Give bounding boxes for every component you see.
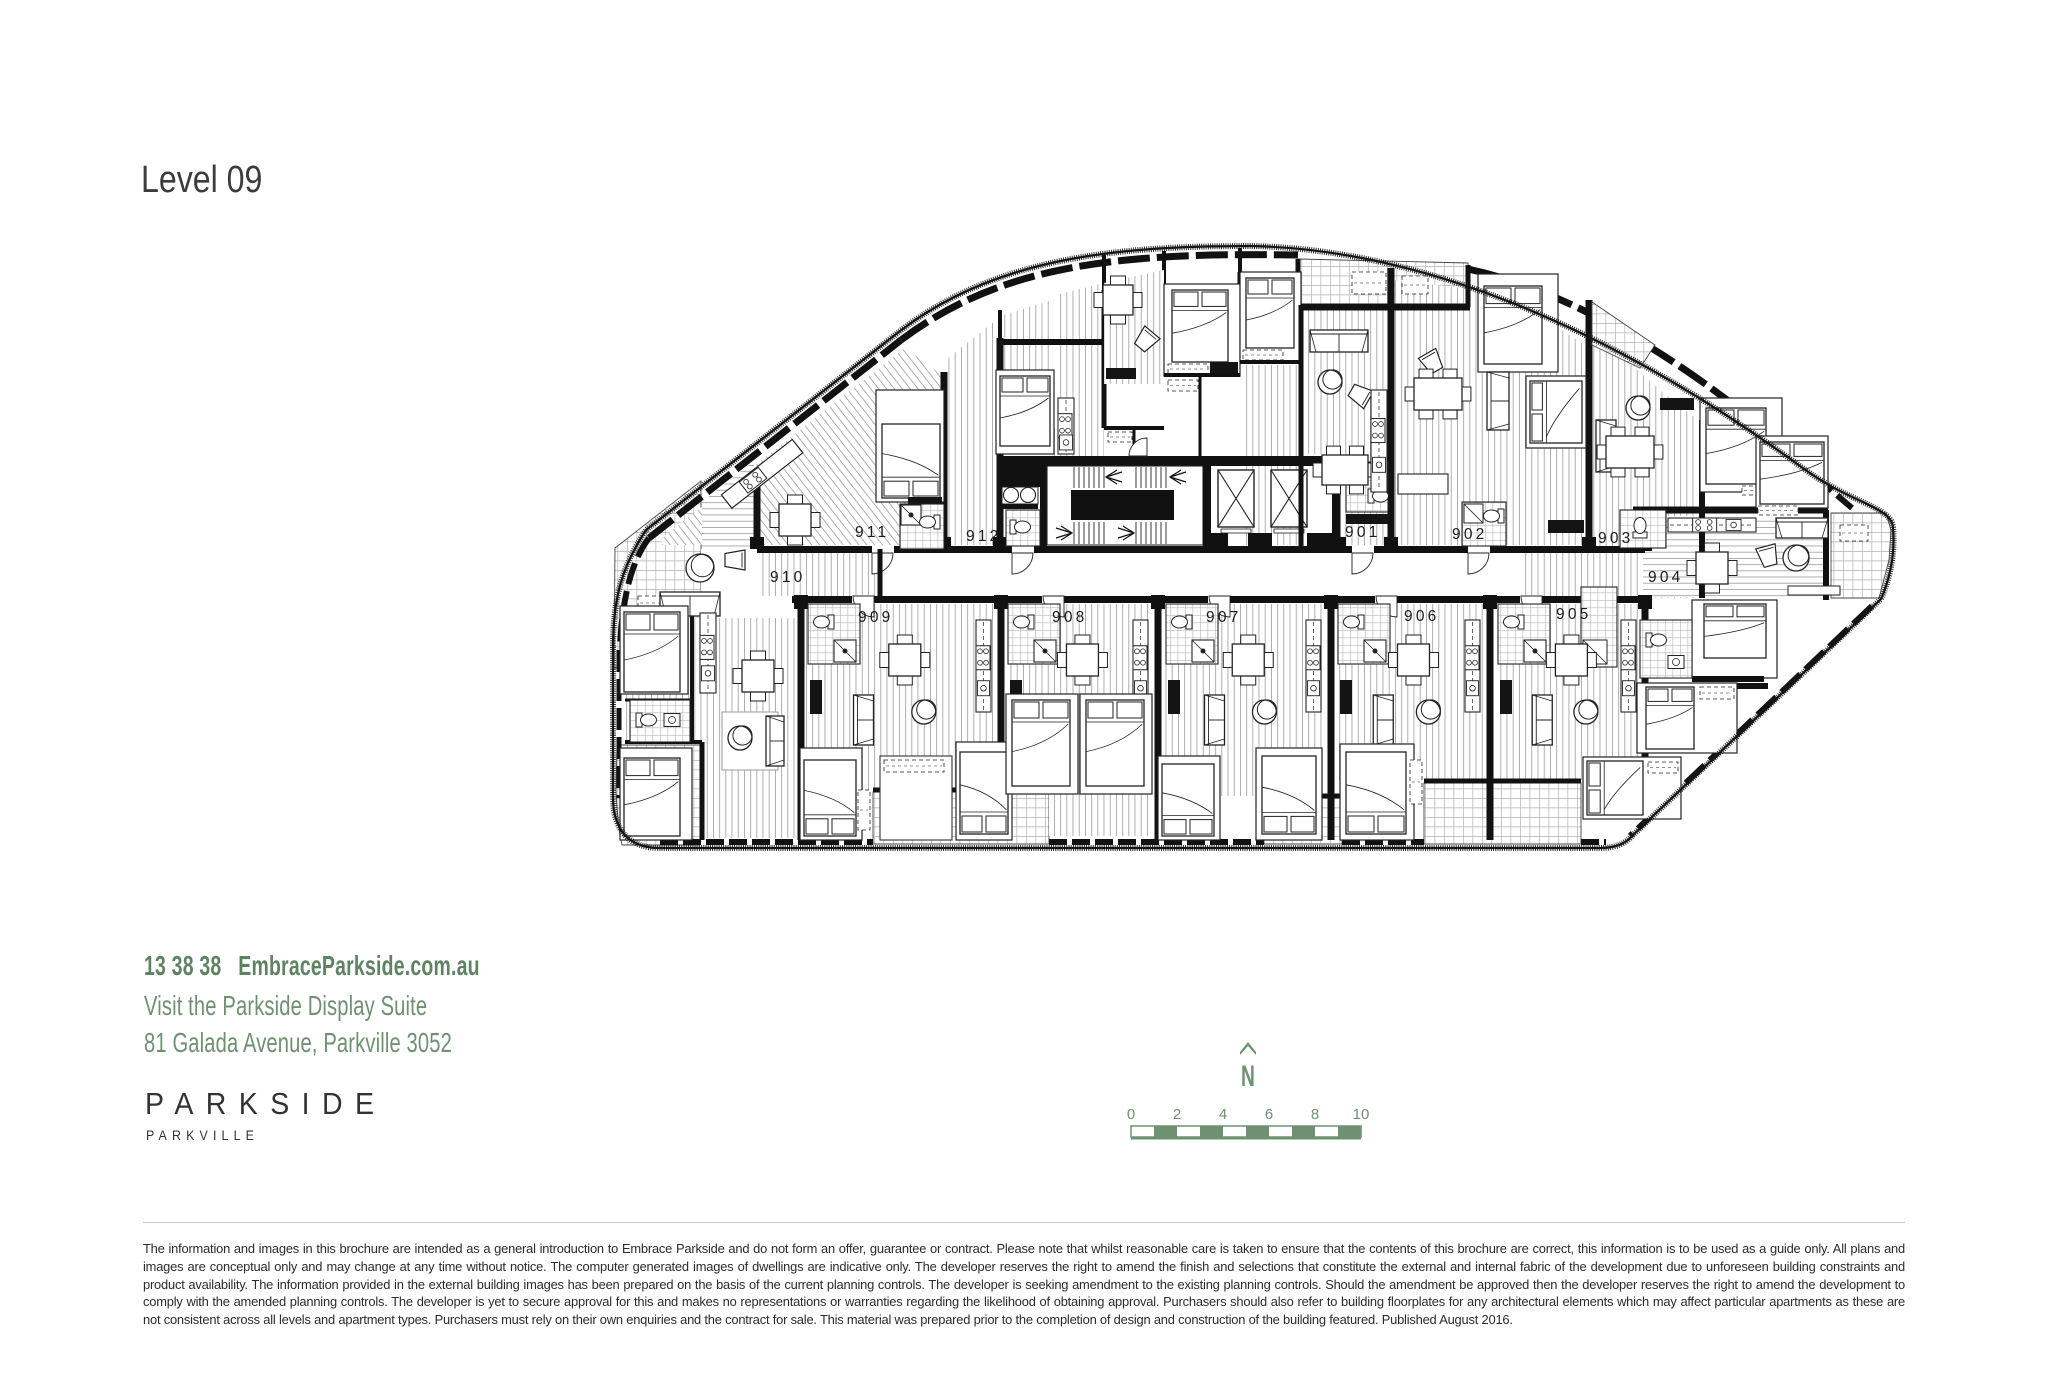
svg-text:2: 2: [1173, 1106, 1181, 1123]
svg-text:910: 910: [770, 569, 805, 586]
svg-text:N: N: [1241, 1060, 1255, 1090]
svg-text:912: 912: [966, 528, 1001, 545]
svg-text:901: 901: [1345, 524, 1380, 541]
svg-text:909: 909: [858, 609, 893, 626]
svg-text:904: 904: [1648, 569, 1683, 586]
svg-text:6: 6: [1265, 1106, 1273, 1123]
svg-text:903: 903: [1598, 530, 1633, 547]
svg-text:907: 907: [1206, 609, 1241, 626]
svg-text:8: 8: [1311, 1106, 1319, 1123]
svg-text:0: 0: [1127, 1106, 1135, 1123]
svg-text:906: 906: [1404, 608, 1439, 625]
svg-text:4: 4: [1219, 1106, 1227, 1123]
svg-text:905: 905: [1556, 606, 1591, 623]
svg-text:10: 10: [1353, 1106, 1370, 1123]
svg-text:902: 902: [1452, 526, 1487, 543]
svg-text:911: 911: [855, 524, 889, 541]
svg-text:908: 908: [1052, 609, 1087, 626]
